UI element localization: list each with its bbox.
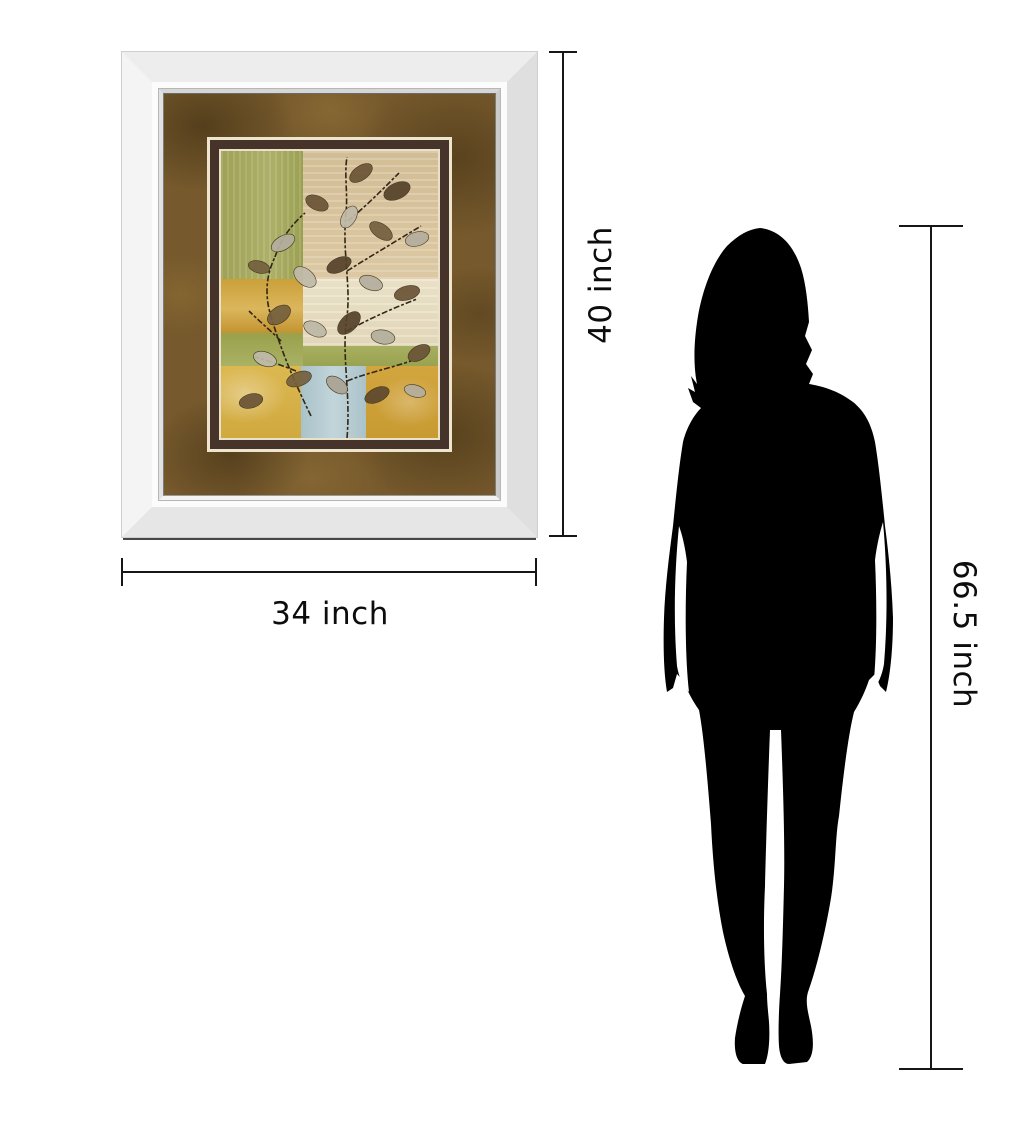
brown-mat [164,94,495,495]
person-height-bottom-cap [899,1068,963,1070]
person-height-dimension-line [930,226,932,1070]
mirror-frame-highlight [152,82,507,507]
mirror-frame-edge-line [158,88,501,501]
artwork-branches-leaves [221,151,438,438]
frame-height-label: 40 inch [583,225,619,345]
cream-liner-outer [207,137,452,452]
frame-height-top-cap [549,51,577,53]
frame-height-dimension-line [562,52,564,537]
frame-width-dimension-line [122,571,537,573]
dark-brown-inner-border [210,140,449,449]
mirror-frame-inner-bevel [159,89,500,500]
woman-silhouette [657,226,907,1068]
person-height-label: 66.5 inch [946,549,982,719]
frame-width-label: 34 inch [250,594,410,634]
product-dimension-diagram: 40 inch 34 inch 66.5 inch [0,0,1024,1125]
artwork [221,151,438,438]
mirror-frame-bevel [122,52,537,537]
mirror-frame-shadow-line [163,93,496,496]
frame-width-right-cap [535,558,537,586]
framed-artwork [122,52,537,537]
person-height-top-cap [899,225,963,227]
frame-width-left-cap [121,558,123,586]
cream-liner-inner [219,149,440,440]
frame-height-bottom-cap [549,535,577,537]
